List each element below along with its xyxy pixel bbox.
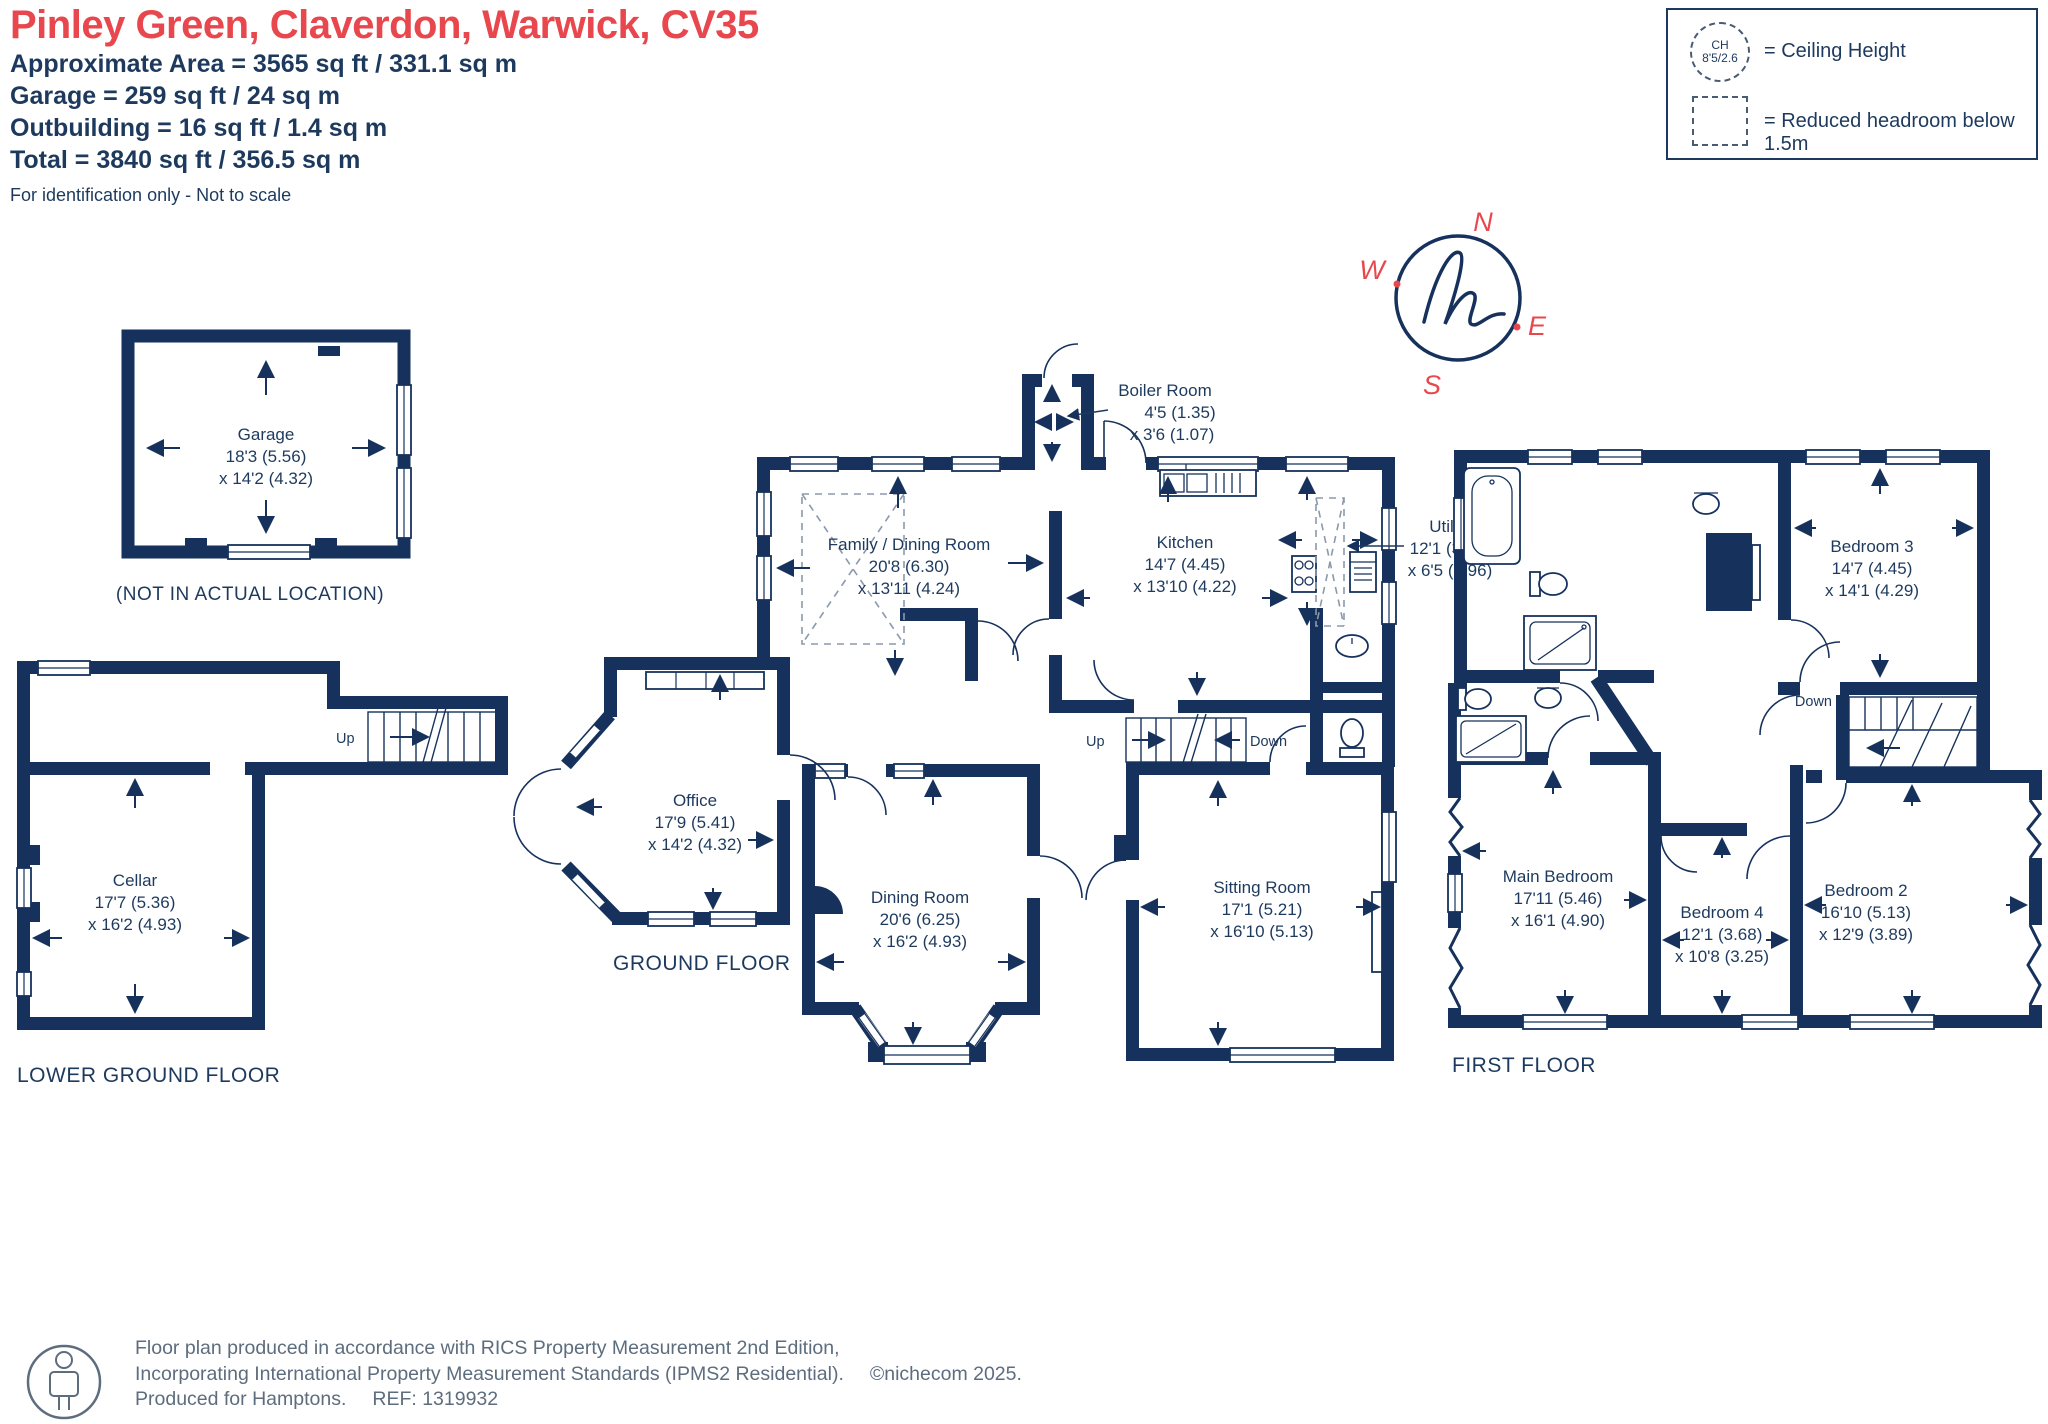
compass-east-dot xyxy=(1514,324,1521,331)
gf-fixtures xyxy=(1160,464,1376,757)
dining-room-dim2: x 16'2 (4.93) xyxy=(873,932,967,951)
bedroom4-name: Bedroom 4 xyxy=(1680,903,1763,922)
lgf-stairs-up-label: Up xyxy=(336,731,355,747)
compass-west-dot xyxy=(1394,281,1401,288)
bedroom3-name: Bedroom 3 xyxy=(1830,537,1913,556)
lgf-stairs-up: Up xyxy=(336,708,496,766)
sitting-room-name: Sitting Room xyxy=(1213,878,1310,897)
office-name: Office xyxy=(673,791,717,810)
ff-ensuite-fixtures xyxy=(1456,688,1561,762)
bedroom3-dim2: x 14'1 (4.29) xyxy=(1825,581,1919,600)
boiler-room-name: Boiler Room xyxy=(1118,381,1212,400)
bedroom2-name: Bedroom 2 xyxy=(1824,881,1907,900)
boiler-room-dim2: x 3'6 (1.07) xyxy=(1130,425,1215,444)
cellar-dim1: 17'7 (5.36) xyxy=(95,893,176,912)
ground-floor-label: GROUND FLOOR xyxy=(613,952,791,975)
footer: Floor plan produced in accordance with R… xyxy=(135,1336,1022,1413)
first-floor-label: FIRST FLOOR xyxy=(1452,1054,1596,1077)
bedroom2-dim1: 16'10 (5.13) xyxy=(1821,903,1911,922)
family-room-name: Family / Dining Room xyxy=(828,535,991,554)
gf-stairs-up-label: Up xyxy=(1086,734,1105,750)
cellar-name: Cellar xyxy=(113,871,158,890)
office-dim2: x 14'2 (4.32) xyxy=(648,835,742,854)
bedroom2-dim2: x 12'9 (3.89) xyxy=(1819,925,1913,944)
sitting-room-dim1: 17'1 (5.21) xyxy=(1222,900,1303,919)
cellar-dim2: x 16'2 (4.93) xyxy=(88,915,182,934)
ground-floor-plan: Up Down xyxy=(514,344,1492,1064)
footer-line3: Produced for Hamptons. xyxy=(135,1388,346,1410)
garage-note: (NOT IN ACTUAL LOCATION) xyxy=(116,584,384,605)
compass-east: E xyxy=(1528,311,1547,341)
compass-north: N xyxy=(1473,207,1493,237)
person-icon xyxy=(28,1346,100,1418)
kitchen-dim2: x 13'10 (4.22) xyxy=(1133,577,1236,596)
footer-copyright: ©nichecom 2025. xyxy=(870,1363,1022,1385)
footer-line2-row: Incorporating International Property Mea… xyxy=(135,1362,1022,1388)
kitchen-name: Kitchen xyxy=(1157,533,1214,552)
main-bedroom-dim2: x 16'1 (4.90) xyxy=(1511,911,1605,930)
kitchen-dim1: 14'7 (4.45) xyxy=(1145,555,1226,574)
main-bedroom-dim1: 17'11 (5.46) xyxy=(1514,889,1603,908)
compass-south: S xyxy=(1423,370,1441,400)
garage-plan: Garage 18'3 (5.56) x 14'2 (4.32) (NOT IN… xyxy=(116,336,411,605)
bedroom3-dim1: 14'7 (4.45) xyxy=(1832,559,1913,578)
garage-name: Garage xyxy=(238,425,295,444)
footer-line1: Floor plan produced in accordance with R… xyxy=(135,1336,1022,1362)
gf-dimension-arrows xyxy=(578,386,1379,1044)
sitting-room-dim2: x 16'10 (5.13) xyxy=(1210,922,1313,941)
compass-west: W xyxy=(1359,255,1387,285)
floorplan-page: Pinley Green, Claverdon, Warwick, CV35 A… xyxy=(0,0,2048,1424)
floorplan-drawing: N E S W Garage xyxy=(0,0,2048,1424)
office-dim1: 17'9 (5.41) xyxy=(655,813,736,832)
compass: N E S W xyxy=(1359,207,1547,400)
lower-ground-floor-label: LOWER GROUND FLOOR xyxy=(17,1064,280,1087)
family-room-dim1: 20'8 (6.30) xyxy=(869,557,950,576)
garage-dim2: x 14'2 (4.32) xyxy=(219,469,313,488)
bedroom4-dim2: x 10'8 (3.25) xyxy=(1675,947,1769,966)
footer-line2: Incorporating International Property Mea… xyxy=(135,1363,844,1385)
footer-line3-row: Produced for Hamptons.REF: 1319932 xyxy=(135,1387,1022,1413)
boiler-room-dim1: 4'5 (1.35) xyxy=(1144,403,1215,422)
garage-dim1: 18'3 (5.56) xyxy=(226,447,307,466)
lower-ground-floor-plan: Up Cellar 17'7 (5.36) x 16'2 (4.93) LOWE… xyxy=(17,661,508,1087)
family-room-dim2: x 13'11 (4.24) xyxy=(858,579,960,598)
ff-stairs-down-label: Down xyxy=(1795,694,1832,710)
gf-stairs-down-label: Down xyxy=(1250,734,1287,750)
dining-room-name: Dining Room xyxy=(871,888,969,907)
ff-stairs-down: Down xyxy=(1795,694,1977,767)
ff-bathroom-fixtures xyxy=(1464,468,1719,670)
dining-room-dim1: 20'6 (6.25) xyxy=(880,910,961,929)
bedroom4-dim1: 12'1 (3.68) xyxy=(1682,925,1763,944)
main-bedroom-name: Main Bedroom xyxy=(1503,867,1614,886)
footer-ref: REF: 1319932 xyxy=(372,1388,498,1410)
first-floor-plan: Down Bedroom 3 14'7 ( xyxy=(1448,450,2042,1077)
gf-stairs: Up Down xyxy=(1086,714,1287,766)
lgf-walls xyxy=(17,661,508,1030)
